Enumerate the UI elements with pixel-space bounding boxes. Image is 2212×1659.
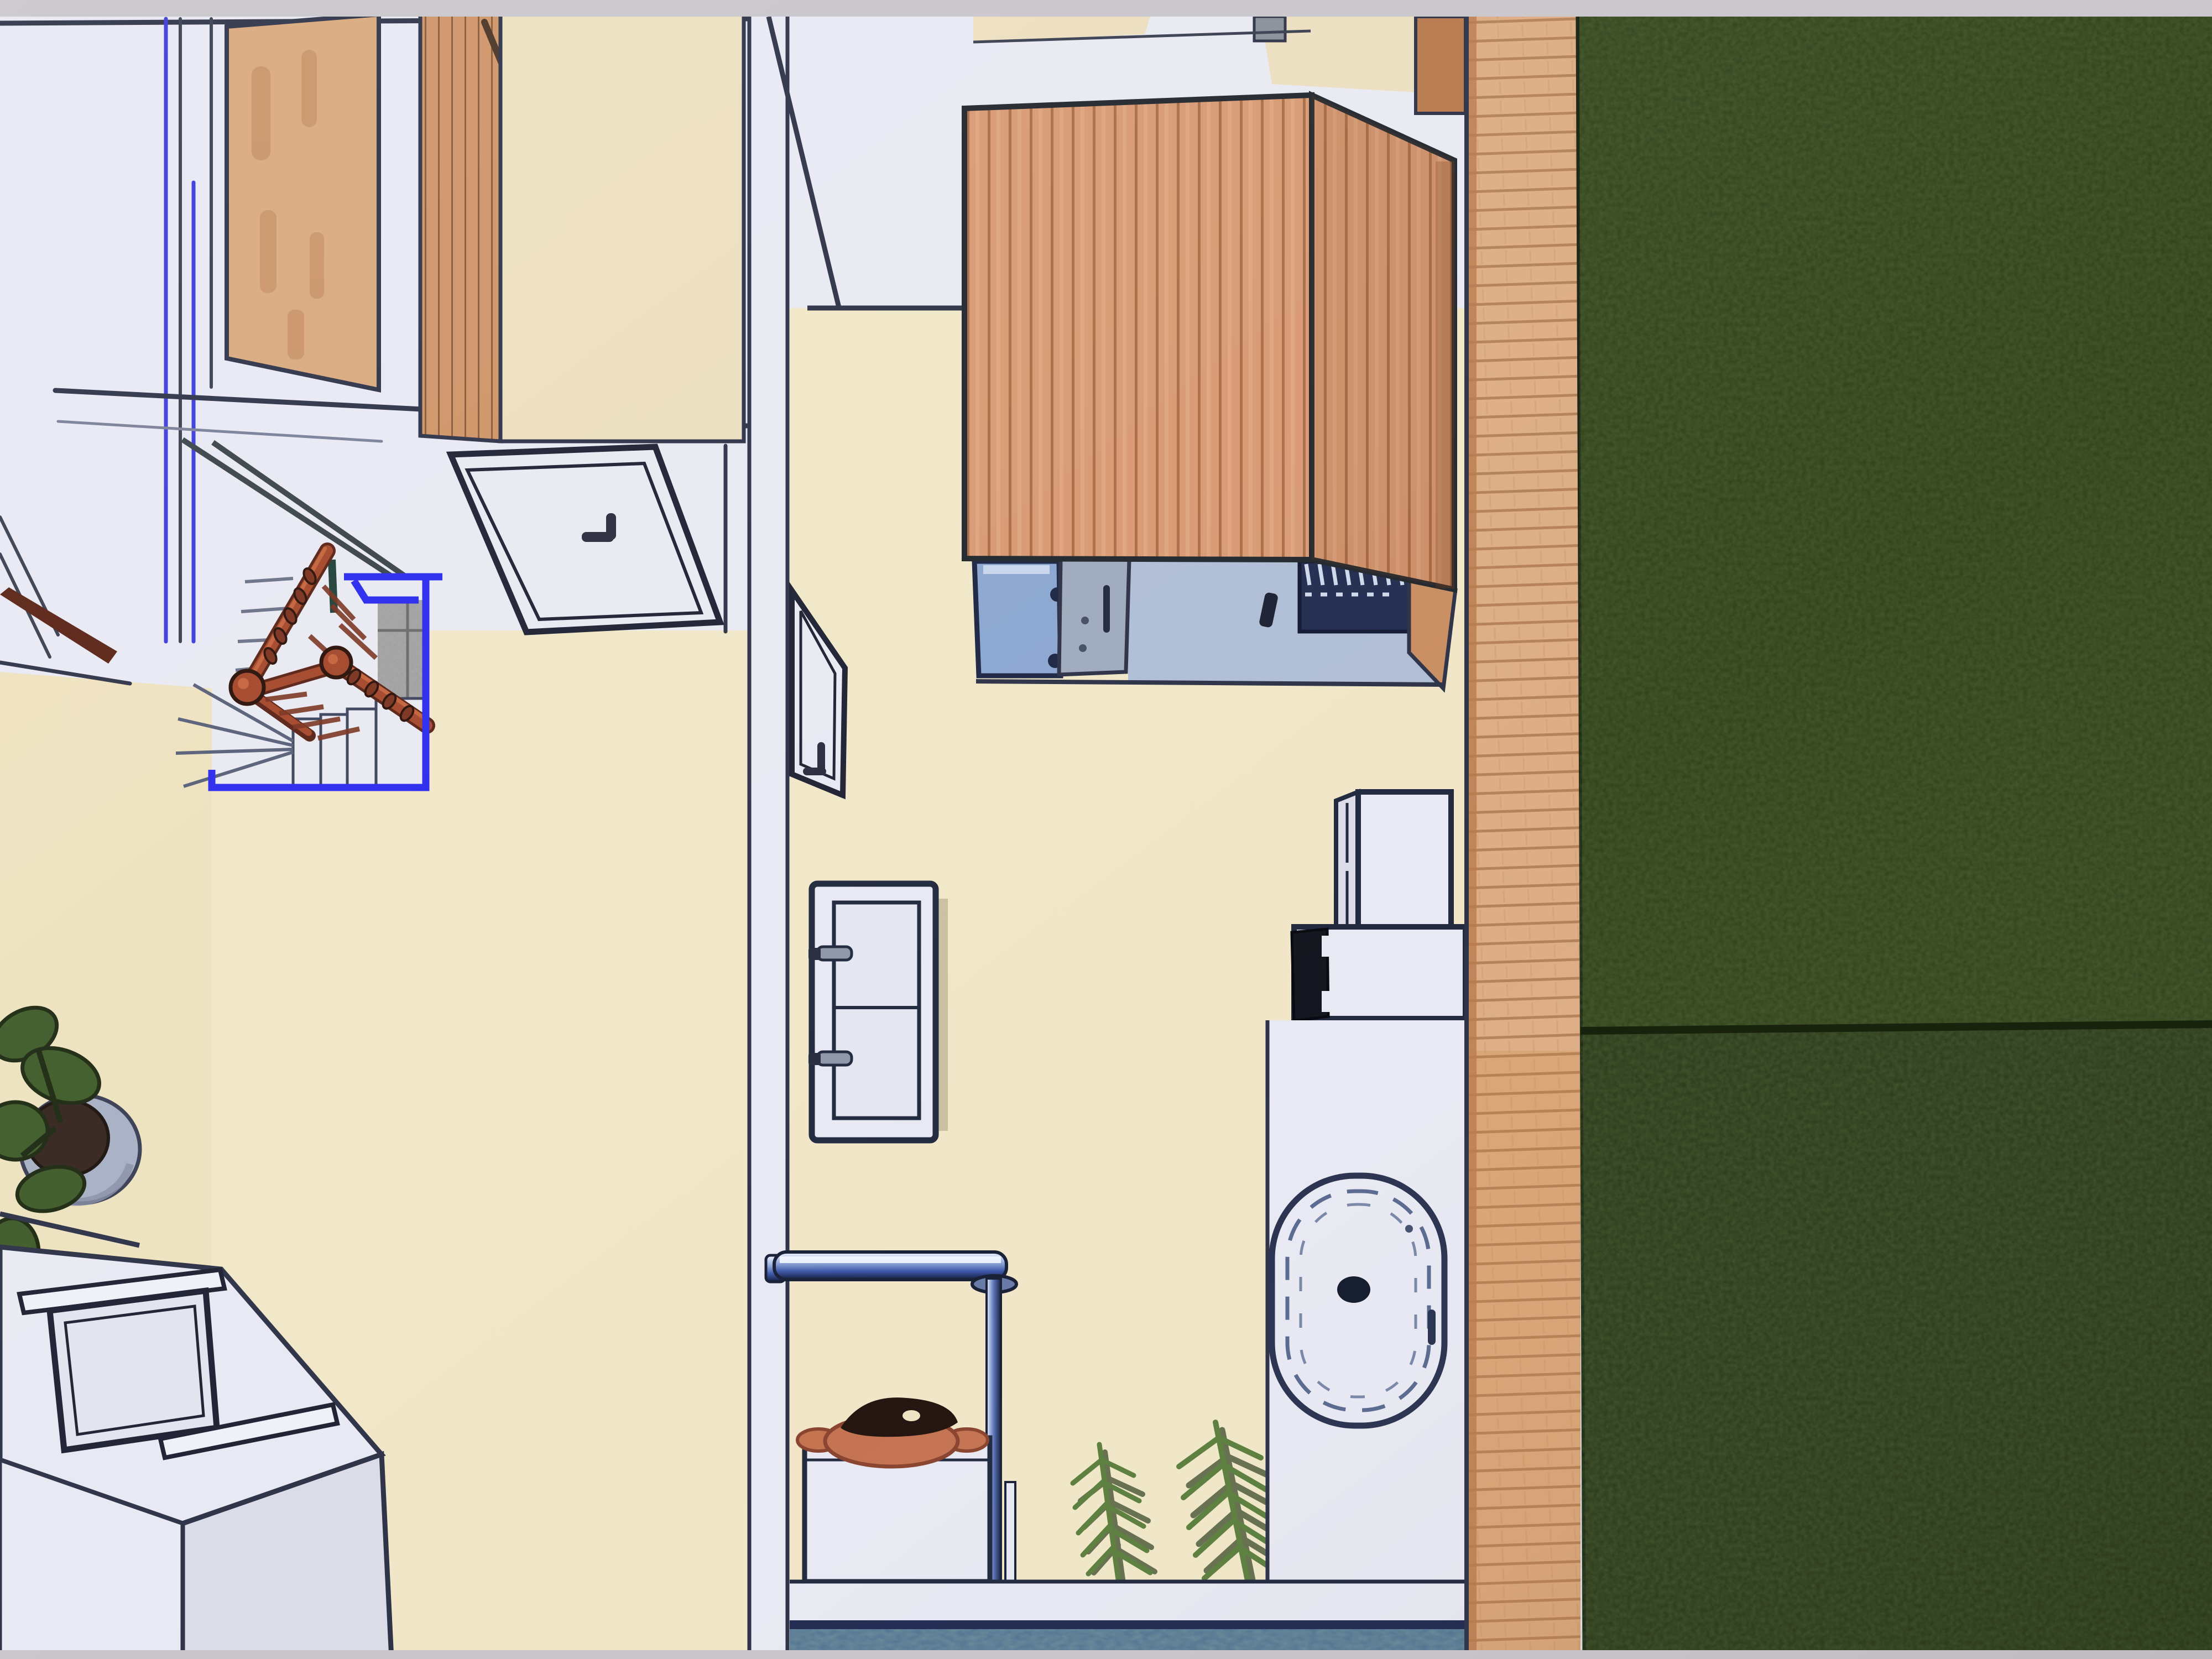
screen-light-sheen: [0, 0, 2212, 1659]
floorplan-render: [0, 0, 2212, 1659]
design-app-viewport: [0, 0, 2212, 1659]
